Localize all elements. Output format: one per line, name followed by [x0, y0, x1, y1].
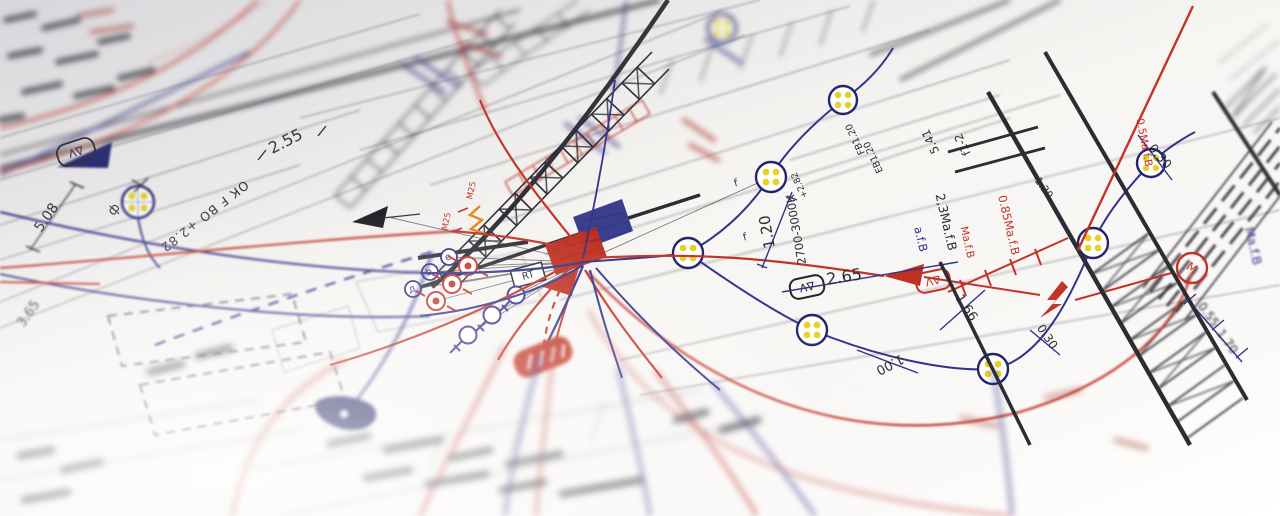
highlight-wash — [0, 0, 1280, 516]
blueprint-photo: RT е b д — [0, 0, 1280, 516]
blueprint-canvas: RT е b д — [0, 0, 1280, 516]
